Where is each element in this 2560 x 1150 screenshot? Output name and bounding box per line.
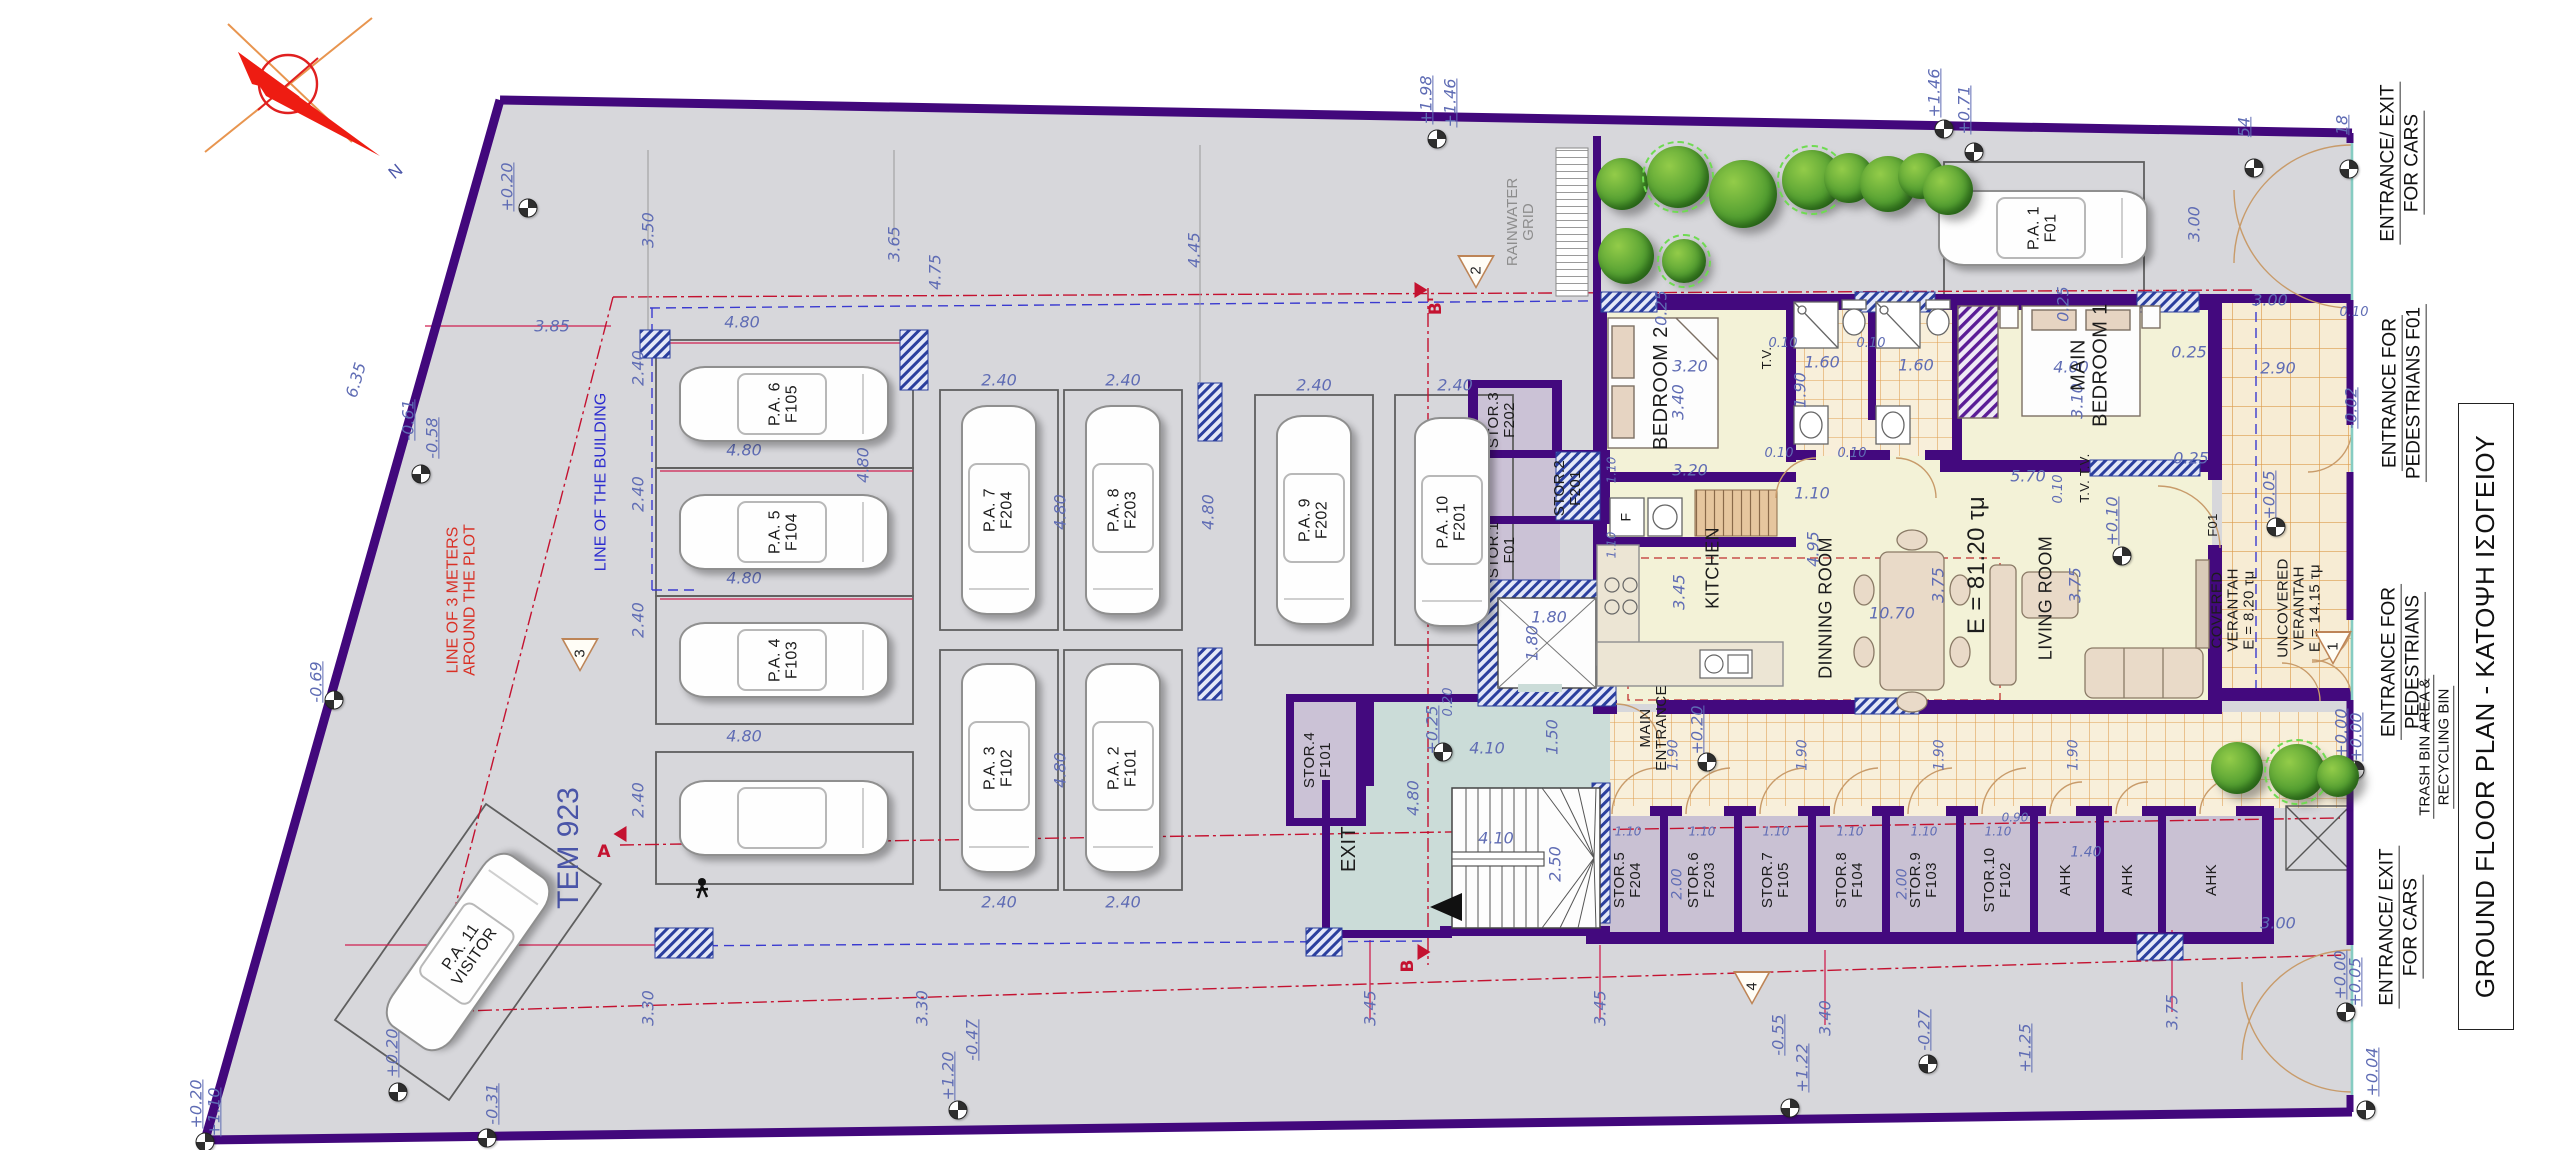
tree-icon: [1662, 239, 1706, 283]
label-line: ENTRANCE/ EXIT: [2377, 845, 2400, 1008]
tree-icon: [1709, 160, 1777, 228]
level-marker-icon: [519, 199, 538, 218]
car-icon: [679, 622, 889, 698]
label-line: TRASH BIN AREA &: [2416, 675, 2434, 819]
level-marker-icon: [1965, 143, 1984, 162]
compass-icon: [205, 18, 380, 156]
level-marker-icon: [1698, 753, 1717, 772]
car-icon: [1414, 417, 1490, 627]
tree-icon: [2317, 755, 2359, 797]
car-icon: [679, 494, 889, 570]
label-line: ENTRANCE FOR: [2380, 315, 2403, 471]
label-line: RECYCLING BIN: [2436, 686, 2454, 809]
label-line: PEDESTRIANS F01: [2404, 304, 2427, 482]
staircase: [1430, 788, 1600, 928]
level-marker-icon: [478, 1129, 497, 1148]
car-icon: [961, 405, 1037, 615]
label-trash-bin-area: TRASH BIN AREA & RECYCLING BIN: [2416, 675, 2454, 819]
drawing-title-box: GROUND FLOOR PLAN - ΚΑΤΟΨΗ ΙΣΟΓΕΙΟΥ: [2458, 403, 2514, 1030]
label-entrance-pedestrians-f01: ENTRANCE FOR PEDESTRIANS F01: [2380, 304, 2427, 482]
label-entrance-exit-cars-top: ENTRANCE/ EXIT FOR CARS: [2378, 81, 2425, 244]
level-marker-icon: [1434, 743, 1453, 762]
level-marker-icon: [1781, 1099, 1800, 1118]
level-marker-icon: [2113, 547, 2132, 566]
car-icon: [679, 366, 889, 442]
detail-marker-4: 4: [1733, 971, 1771, 1005]
label-line: ENTRANCE FOR: [2379, 584, 2402, 740]
level-marker-icon: [196, 1133, 215, 1150]
level-marker-icon: [412, 465, 431, 484]
floor-plan-page: TEM 923 LINE OF 3 METERS AROUND THE PLOT…: [0, 0, 2560, 1150]
tree-icon: [1596, 158, 1648, 210]
level-marker-icon: [1919, 1055, 1938, 1074]
section-flag-icon: [614, 826, 627, 842]
tree-icon: [1598, 228, 1654, 284]
detail-marker-1: 1: [2314, 631, 2352, 665]
car-icon: [1085, 663, 1161, 873]
level-marker-icon: [949, 1101, 968, 1120]
level-marker-icon: [2267, 518, 2286, 537]
label-line: ENTRANCE/ EXIT: [2378, 81, 2401, 244]
level-marker-icon: [2337, 1003, 2356, 1022]
label-entrance-exit-cars-bottom: ENTRANCE/ EXIT FOR CARS: [2377, 845, 2424, 1008]
car-icon: [961, 663, 1037, 873]
car-icon: [1085, 405, 1161, 615]
level-marker-icon: [2357, 1101, 2376, 1120]
detail-marker-2: 2: [1457, 255, 1495, 289]
label-line: FOR CARS: [2402, 111, 2425, 215]
detail-marker-3: 3: [561, 638, 599, 672]
level-marker-icon: [389, 1083, 408, 1102]
label-line: FOR CARS: [2401, 875, 2424, 979]
level-marker-icon: [2340, 160, 2359, 179]
car-icon: [679, 780, 889, 856]
level-marker-icon: [2245, 159, 2264, 178]
section-flag-icon: [1418, 944, 1431, 960]
car-icon: [1276, 415, 1352, 625]
level-marker-icon: [1428, 130, 1447, 149]
tree-icon: [1647, 146, 1709, 208]
level-marker-icon: [325, 691, 344, 710]
level-marker-icon: [1935, 120, 1954, 139]
section-flag-icon: [1415, 282, 1428, 298]
tree-icon: [2211, 742, 2263, 794]
tree-icon: [1923, 165, 1973, 215]
drawing-title: GROUND FLOOR PLAN - ΚΑΤΟΨΗ ΙΣΟΓΕΙΟΥ: [2471, 435, 2502, 998]
